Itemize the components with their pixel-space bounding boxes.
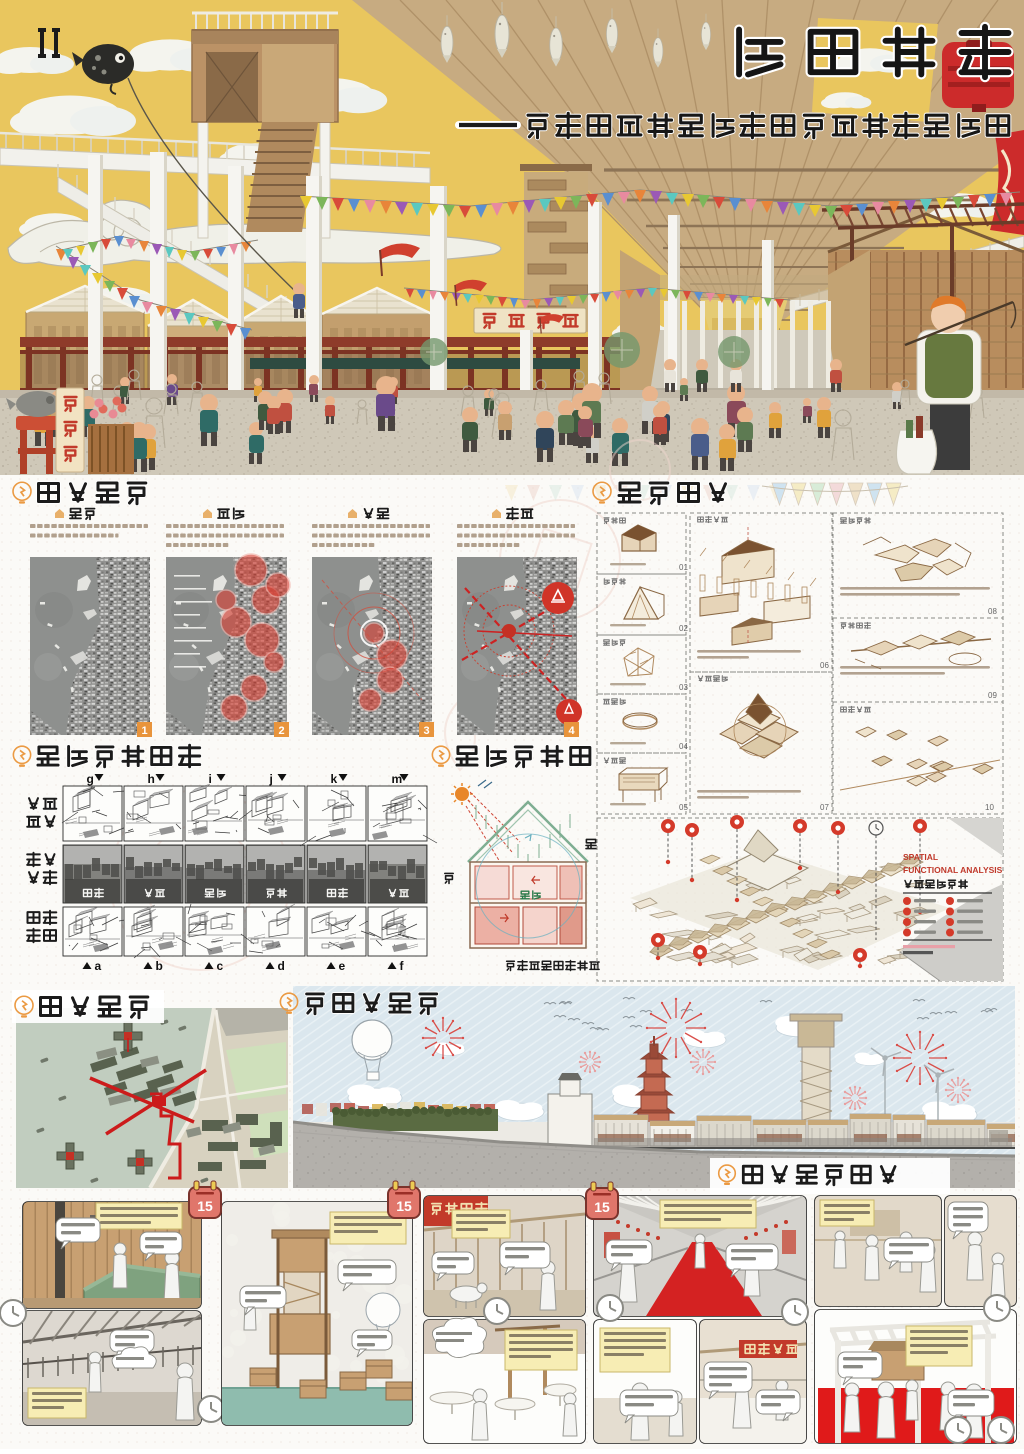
svg-text:j: j xyxy=(269,772,273,786)
svg-text:3: 3 xyxy=(423,725,429,737)
svg-text:d: d xyxy=(278,959,285,973)
svg-text:15: 15 xyxy=(396,1198,412,1214)
svg-text:15: 15 xyxy=(594,1199,610,1215)
svg-text:2: 2 xyxy=(278,725,284,737)
svg-text:g: g xyxy=(87,772,94,786)
svg-text:15: 15 xyxy=(197,1198,213,1214)
svg-text:07: 07 xyxy=(820,803,829,812)
svg-text:a: a xyxy=(95,959,102,973)
svg-text:06: 06 xyxy=(820,661,829,670)
svg-text:e: e xyxy=(339,959,346,973)
svg-text:08: 08 xyxy=(988,607,997,616)
svg-text:04: 04 xyxy=(679,742,688,751)
svg-text:k: k xyxy=(331,772,338,786)
svg-text:10: 10 xyxy=(985,803,994,812)
svg-text:SPATIAL: SPATIAL xyxy=(903,852,938,862)
svg-text:h: h xyxy=(148,772,155,786)
svg-text:09: 09 xyxy=(988,691,997,700)
svg-text:c: c xyxy=(217,959,224,973)
svg-text:05: 05 xyxy=(679,803,688,812)
svg-text:4: 4 xyxy=(568,725,575,737)
svg-text:02: 02 xyxy=(679,624,688,633)
svg-text:01: 01 xyxy=(679,563,688,572)
svg-text:FUNCTIONAL ANALYSIS: FUNCTIONAL ANALYSIS xyxy=(903,865,1003,875)
svg-text:03: 03 xyxy=(679,683,688,692)
svg-text:i: i xyxy=(209,772,212,786)
svg-text:1: 1 xyxy=(141,725,147,737)
svg-text:b: b xyxy=(156,959,163,973)
